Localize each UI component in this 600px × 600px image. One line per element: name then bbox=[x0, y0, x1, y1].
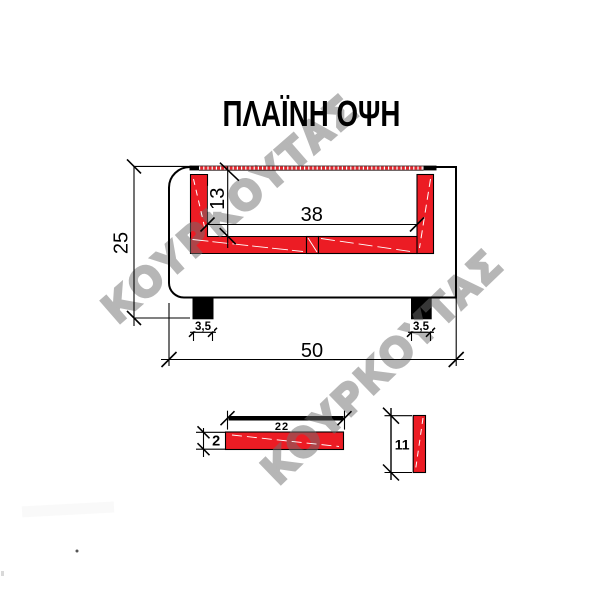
svg-text:2: 2 bbox=[212, 434, 220, 450]
svg-text:50: 50 bbox=[301, 340, 323, 362]
svg-text:11: 11 bbox=[395, 437, 410, 453]
svg-text:25: 25 bbox=[111, 232, 133, 254]
svg-text:3,5: 3,5 bbox=[413, 321, 430, 333]
svg-text:ΚΟΥΡΚΟΥΤΑΣ: ΚΟΥΡΚΟΥΤΑΣ bbox=[253, 242, 509, 491]
svg-text:22: 22 bbox=[275, 421, 289, 433]
svg-text:13: 13 bbox=[207, 188, 229, 210]
svg-text:38: 38 bbox=[301, 204, 323, 226]
svg-text:3,5: 3,5 bbox=[195, 321, 212, 333]
svg-text:ΠΛΑΪΝΗ ΟΨΗ: ΠΛΑΪΝΗ ΟΨΗ bbox=[223, 94, 401, 134]
